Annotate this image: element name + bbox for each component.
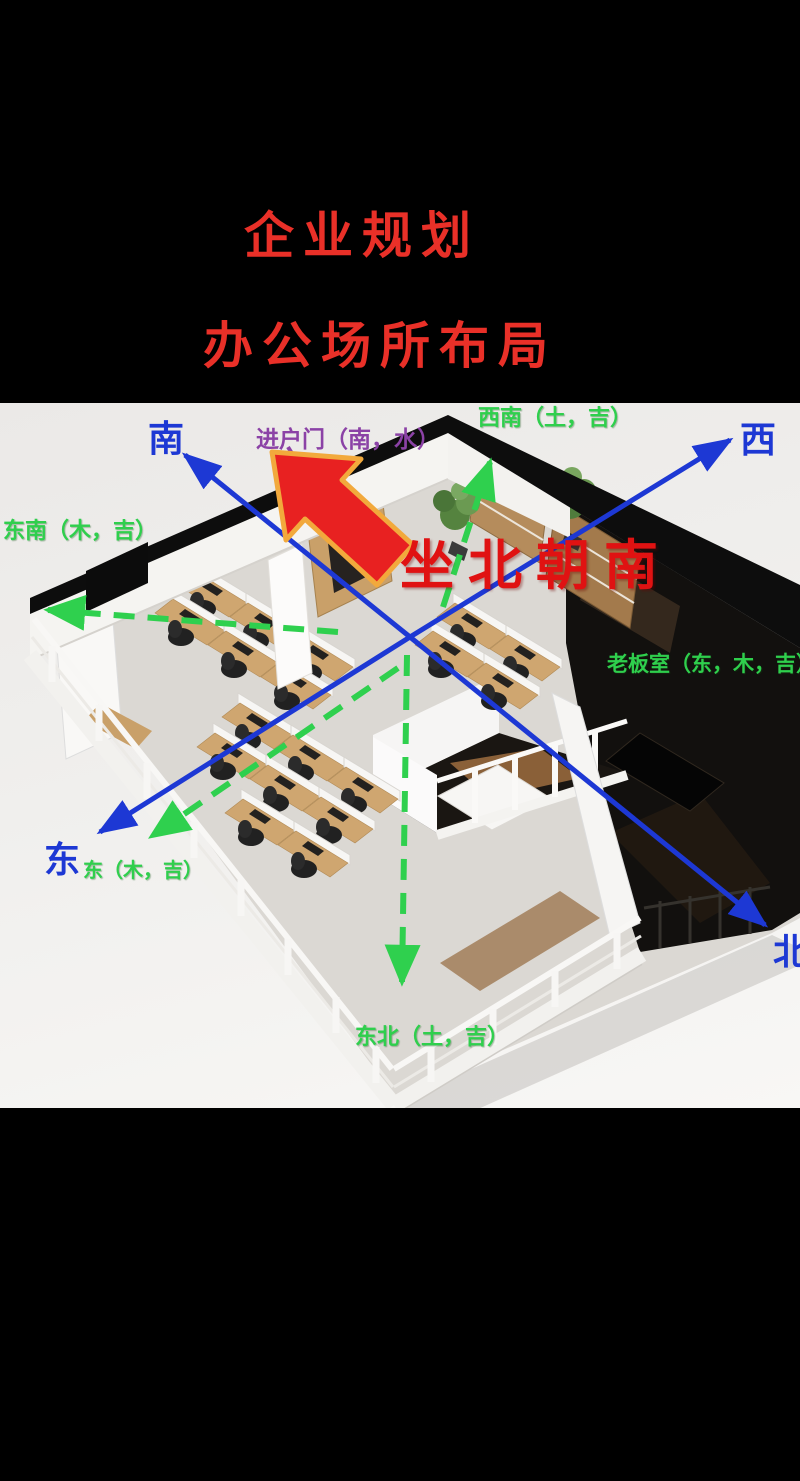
southeast-label: 东南（木，吉） [3,519,157,543]
video-frame: 企业规划 办公场所布局 [0,0,800,1481]
southwest-label: 西南（土，吉） [478,406,632,430]
northeast-label: 东北（土，吉） [355,1025,509,1049]
east-element-label: 东（木，吉） [83,860,203,882]
orientation-label: 坐北朝南 [400,537,672,596]
compass-label-north: 北 [773,932,800,972]
compass-label-east: 东 [44,840,80,880]
floorplan-photo: 南 西 东 北 进户门（南，水） 西南（土，吉） 东南（木，吉） 东（木，吉） … [0,403,800,1108]
bottom-letterbox [0,1108,800,1481]
boss-office-label: 老板室（东，木，吉） [607,653,800,676]
compass-label-south: 南 [148,419,184,459]
title-line-1: 企业规划 [244,196,480,268]
compass-label-west: 西 [740,420,776,460]
entrance-door-label: 进户门（南，水） [256,427,440,452]
title-line-2: 办公场所布局 [203,306,557,378]
floorplan-illustration [0,403,800,1108]
